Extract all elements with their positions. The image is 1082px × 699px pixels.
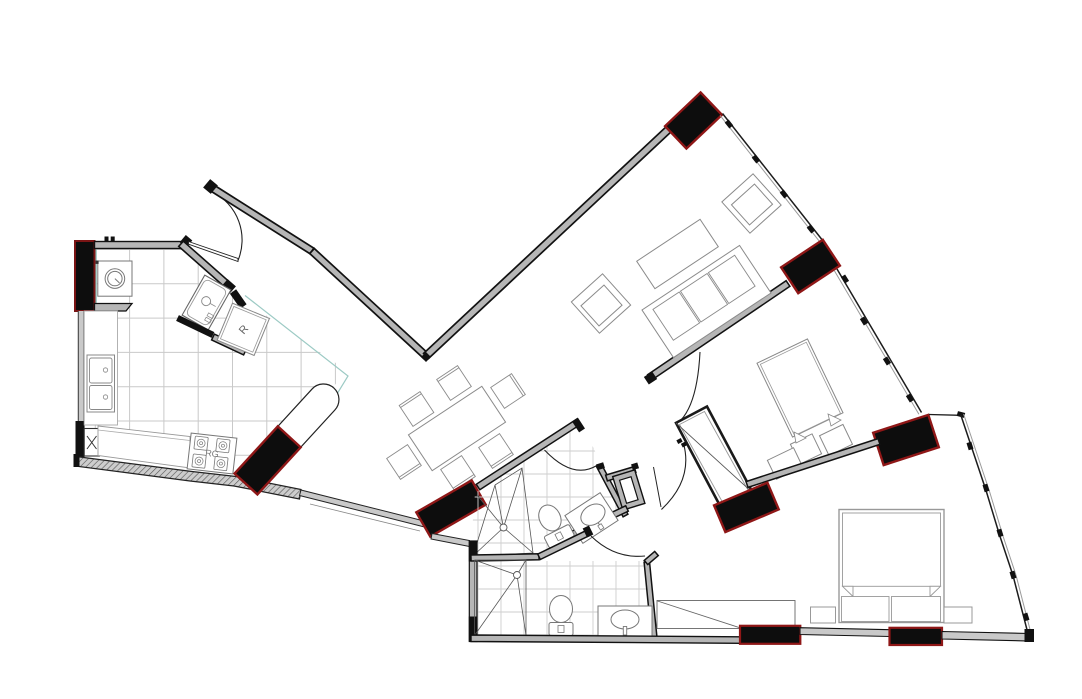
svg-text:RG: RG <box>205 448 220 459</box>
